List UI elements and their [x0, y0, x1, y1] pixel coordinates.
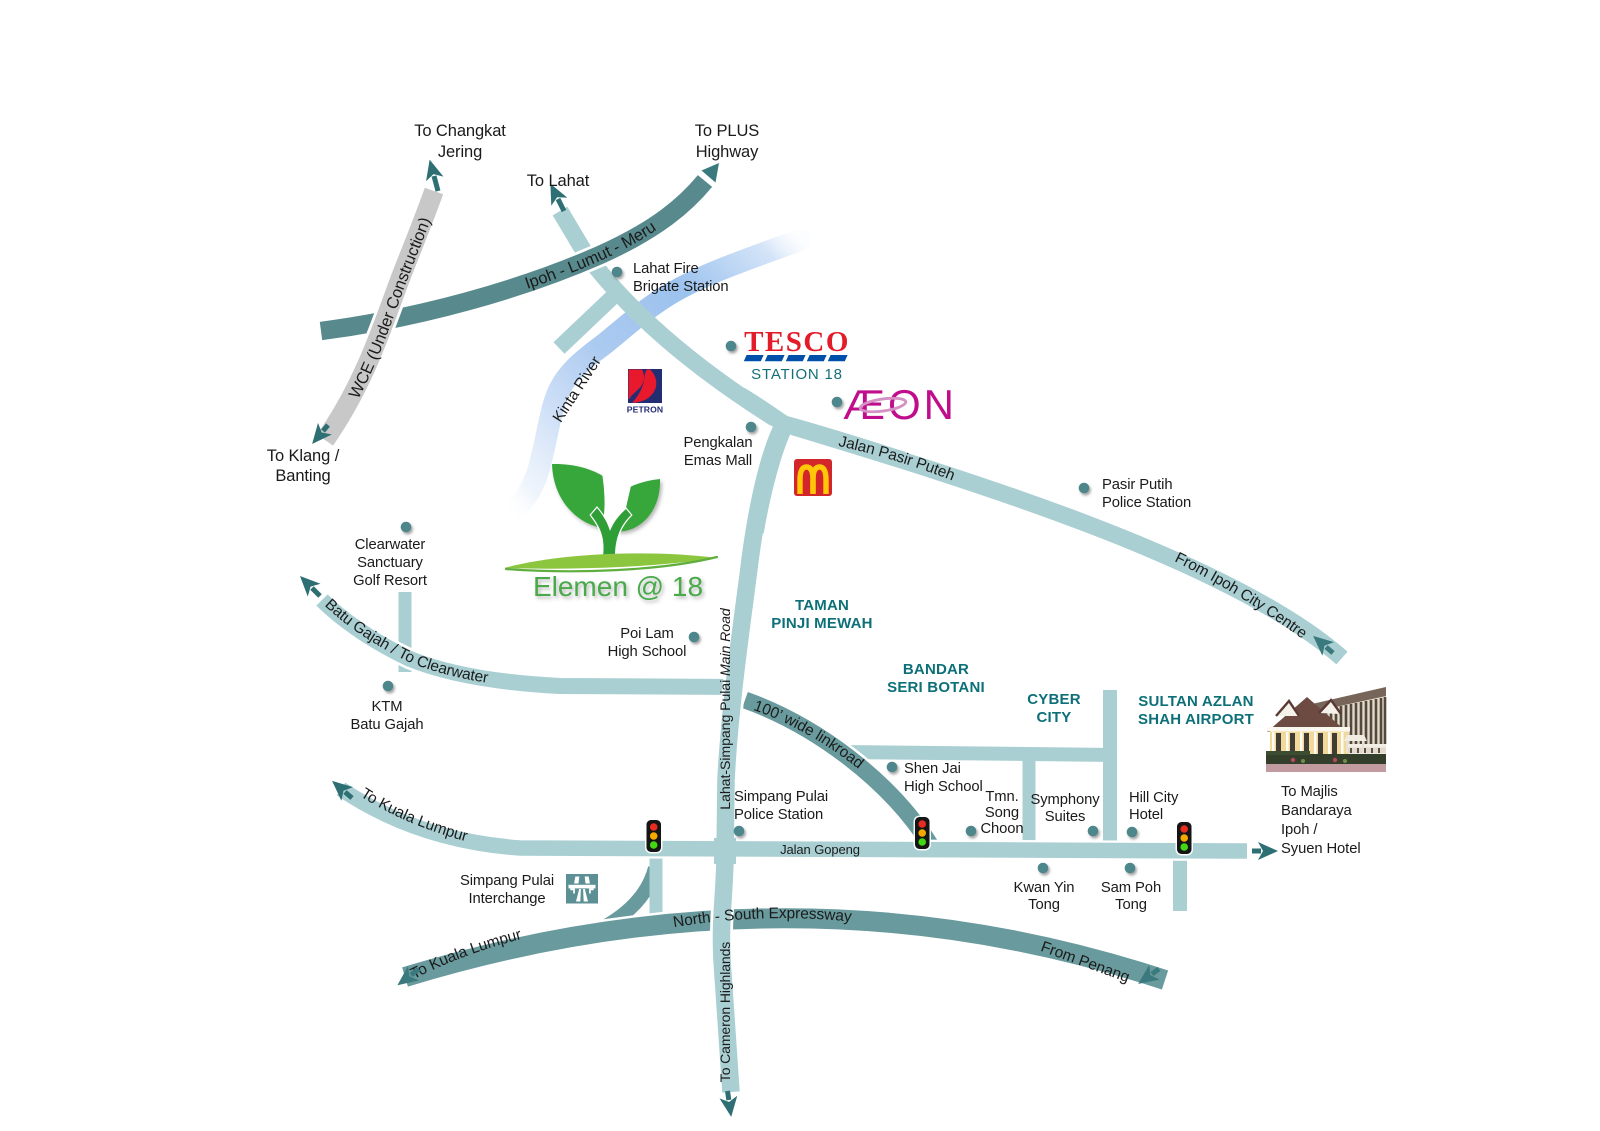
- svg-text:High School: High School: [608, 644, 687, 660]
- svg-text:Tong: Tong: [1115, 897, 1147, 913]
- svg-text:STATION 18: STATION 18: [751, 366, 843, 383]
- svg-text:To Lahat: To Lahat: [527, 172, 590, 190]
- svg-text:Jering: Jering: [438, 143, 482, 161]
- svg-text:CYBER: CYBER: [1027, 691, 1081, 708]
- svg-text:Suites: Suites: [1045, 809, 1086, 825]
- svg-text:Clearwater: Clearwater: [355, 537, 426, 553]
- svg-text:To Klang /: To Klang /: [267, 447, 340, 465]
- svg-text:Song: Song: [985, 805, 1019, 821]
- svg-text:Batu Gajah: Batu Gajah: [350, 717, 423, 733]
- svg-text:Lahat-Simpang Pulai Main Road: Lahat-Simpang Pulai Main Road: [718, 607, 734, 810]
- svg-text:Banting: Banting: [275, 467, 330, 485]
- svg-text:PETRON: PETRON: [627, 405, 663, 415]
- svg-text:KTM: KTM: [372, 699, 403, 715]
- svg-text:Bandaraya: Bandaraya: [1281, 803, 1353, 819]
- svg-text:Emas Mall: Emas Mall: [684, 453, 752, 469]
- svg-text:Symphony: Symphony: [1030, 792, 1100, 808]
- svg-text:Sam Poh: Sam Poh: [1101, 880, 1161, 896]
- svg-text:To Cameron Highlands: To Cameron Highlands: [717, 942, 733, 1083]
- svg-text:To Changkat: To Changkat: [414, 122, 506, 140]
- svg-text:Brigate Station: Brigate Station: [633, 279, 729, 295]
- svg-text:Elemen @ 18: Elemen @ 18: [533, 571, 703, 602]
- svg-text:Sanctuary: Sanctuary: [357, 555, 423, 571]
- svg-text:Syuen Hotel: Syuen Hotel: [1281, 841, 1361, 857]
- svg-text:Jalan Gopeng: Jalan Gopeng: [780, 842, 860, 857]
- svg-text:Simpang Pulai: Simpang Pulai: [460, 873, 554, 889]
- svg-text:SERI BOTANI: SERI BOTANI: [887, 679, 985, 696]
- svg-text:Kwan Yin: Kwan Yin: [1014, 880, 1075, 896]
- svg-text:CITY: CITY: [1037, 709, 1072, 726]
- svg-text:Poi Lam: Poi Lam: [620, 626, 674, 642]
- svg-text:Golf Resort: Golf Resort: [353, 573, 427, 589]
- svg-text:Shen Jai: Shen Jai: [904, 761, 961, 777]
- svg-text:PINJI MEWAH: PINJI MEWAH: [771, 615, 872, 632]
- svg-text:Tmn.: Tmn.: [985, 789, 1018, 805]
- svg-text:TAMAN: TAMAN: [795, 597, 849, 614]
- svg-text:BANDAR: BANDAR: [903, 661, 969, 678]
- svg-text:Pasir Putih: Pasir Putih: [1102, 477, 1172, 493]
- svg-text:TESCO: TESCO: [744, 326, 850, 358]
- svg-text:Lahat Fire: Lahat Fire: [633, 261, 699, 277]
- svg-text:From Ipoh City Centre: From Ipoh City Centre: [1172, 549, 1310, 642]
- svg-text:Interchange: Interchange: [468, 891, 545, 907]
- svg-text:High School: High School: [904, 779, 983, 795]
- svg-text:Police Station: Police Station: [1102, 495, 1191, 511]
- svg-text:100’ wide linkroad: 100’ wide linkroad: [751, 698, 866, 773]
- svg-text:Hotel: Hotel: [1129, 807, 1163, 823]
- svg-text:To Majlis: To Majlis: [1281, 784, 1338, 800]
- svg-text:Pengkalan: Pengkalan: [683, 435, 752, 451]
- svg-text:To PLUS: To PLUS: [695, 122, 760, 140]
- svg-text:Police Station: Police Station: [734, 807, 823, 823]
- svg-text:Choon: Choon: [980, 821, 1023, 837]
- svg-text:Highway: Highway: [696, 143, 759, 161]
- svg-text:Tong: Tong: [1028, 897, 1060, 913]
- svg-text:Jalan Pasir Puteh: Jalan Pasir Puteh: [837, 433, 957, 484]
- svg-text:ÆON: ÆON: [843, 381, 957, 428]
- svg-text:SULTAN AZLAN: SULTAN AZLAN: [1138, 693, 1253, 710]
- svg-text:SHAH AIRPORT: SHAH AIRPORT: [1138, 711, 1254, 728]
- svg-text:Hill City: Hill City: [1129, 790, 1179, 806]
- svg-text:Ipoh /: Ipoh /: [1281, 822, 1318, 838]
- svg-text:Simpang Pulai: Simpang Pulai: [734, 789, 828, 805]
